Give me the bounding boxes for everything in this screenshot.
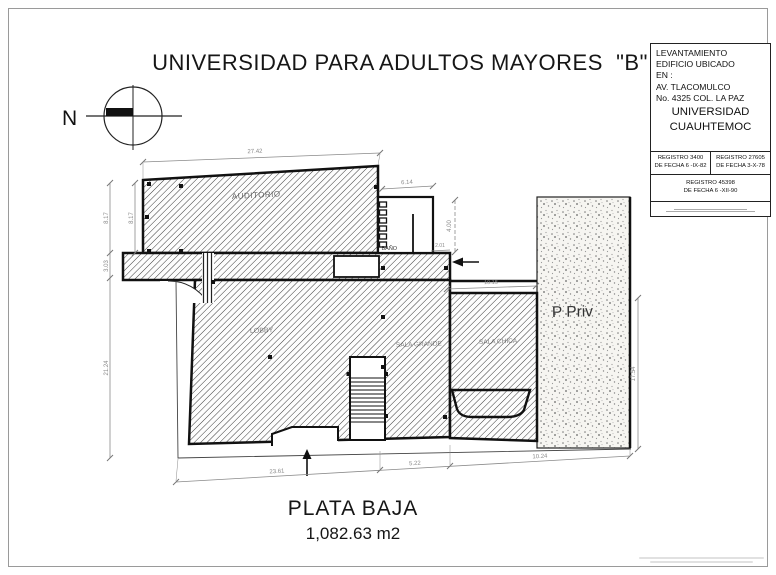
drawing-sheet: UNIVERSIDAD PARA ADULTOS MAYORES "B" LEV… [0,0,776,575]
plan-name: PLATA BAJA [153,497,553,521]
lobby-label: LOBBY [250,327,274,335]
dim-left-mid: 3.03 [104,260,110,272]
dim-bottom-mid: 5.22 [409,461,422,468]
footer-title: PLATA BAJA 1,082.63 m2 [153,497,553,544]
dim-left-inner: 8.17 [129,212,135,224]
north-arrow-bar [106,108,133,116]
auditorium-room [143,166,378,253]
main-hall [189,280,450,444]
dim-upper-right-width: 10.15 [484,280,498,286]
plan-area: 1,082.63 m2 [153,524,553,544]
private-lot [537,197,630,448]
dim-left-upper: 8.17 [104,212,110,224]
dim-right-side-height: 17.54 [631,366,637,382]
floor-plan-drawing: N [0,0,776,575]
staircase [347,357,389,440]
dim-top-width: 27.42 [247,149,263,156]
watermark-smudge [639,555,764,565]
sala-2-label: SALA CHICA [479,338,518,346]
private-lot-label: P Priv [552,303,594,321]
dim-bottom-right: 10.24 [532,454,548,461]
right-wing [450,293,537,441]
setback-band [123,253,450,280]
north-symbol [86,85,182,150]
side-entry-arrow [452,258,479,267]
dim-right-height: 4.00 [447,220,453,232]
dim-bottom-left: 23.61 [269,469,285,476]
band-opening [334,256,379,277]
dim-left-lower: 21.24 [104,360,110,376]
dim-bath-width: 6.14 [401,180,414,186]
main-entrance [272,427,338,447]
bath-label: BAÑO [382,245,398,252]
dim-entry-width: 2.01 [435,243,445,249]
main-entry-arrow [303,449,312,476]
bath-room [378,197,433,253]
north-label: N [62,107,77,130]
